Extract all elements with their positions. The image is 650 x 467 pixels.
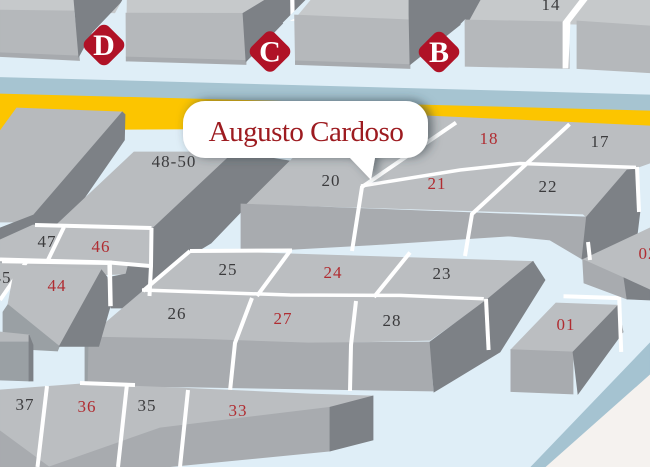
svg-text:01: 01 [557, 315, 576, 334]
svg-text:36: 36 [78, 397, 97, 416]
svg-text:28: 28 [383, 311, 402, 330]
svg-text:B: B [429, 36, 449, 69]
svg-text:26: 26 [168, 304, 187, 323]
svg-text:23: 23 [433, 264, 452, 283]
svg-text:47: 47 [38, 232, 57, 251]
svg-text:37: 37 [16, 395, 35, 414]
svg-text:20: 20 [322, 171, 341, 190]
svg-text:14: 14 [542, 0, 561, 14]
svg-text:C: C [259, 36, 281, 69]
svg-text:17: 17 [591, 132, 610, 151]
svg-text:02: 02 [639, 244, 650, 263]
svg-text:27: 27 [274, 309, 293, 328]
svg-text:25: 25 [219, 260, 238, 279]
svg-text:48-50: 48-50 [152, 152, 197, 171]
svg-text:21: 21 [428, 174, 447, 193]
svg-text:Augusto Cardoso: Augusto Cardoso [209, 116, 404, 148]
svg-text:18: 18 [480, 129, 499, 148]
svg-text:22: 22 [539, 177, 558, 196]
svg-text:44: 44 [48, 276, 67, 295]
svg-text:35: 35 [138, 396, 157, 415]
svg-text:24: 24 [324, 263, 343, 282]
svg-text:46: 46 [92, 237, 111, 256]
svg-text:33: 33 [229, 401, 248, 420]
svg-text:45: 45 [0, 268, 12, 287]
svg-text:D: D [93, 29, 115, 62]
